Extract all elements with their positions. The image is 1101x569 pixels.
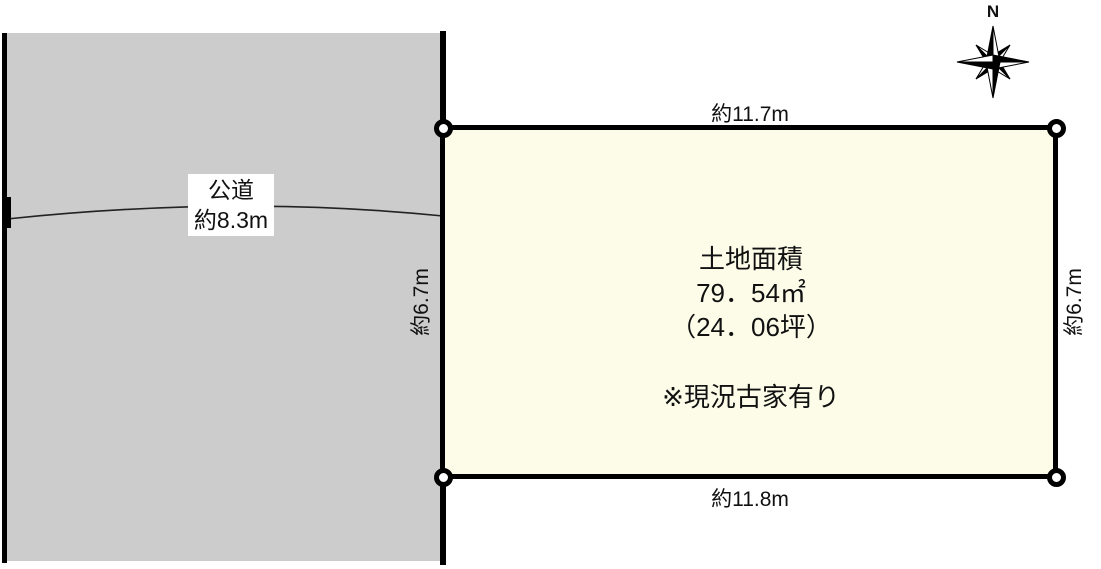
area-sqm: 79．54㎡ xyxy=(443,276,1059,310)
road-width-tick xyxy=(2,197,11,228)
corner-marker-top-left xyxy=(434,119,453,138)
corner-marker-bottom-left xyxy=(434,468,453,487)
road-area xyxy=(7,33,440,561)
compass-north-label: N xyxy=(953,2,1033,22)
road-name: 公道 xyxy=(208,175,254,205)
area-title: 土地面積 xyxy=(443,242,1059,276)
dimension-bottom: 約11.8m xyxy=(600,483,900,513)
road-label: 公道 約8.3m xyxy=(188,174,274,236)
land-plot-diagram: 公道 約8.3m 約11.7m 約11.8m 約6.7m 約6.7m 土地面積 … xyxy=(0,0,1101,569)
dimension-left: 約6.7m xyxy=(405,247,435,357)
plot-note: ※現況古家有り xyxy=(443,380,1059,414)
compass-rose-icon xyxy=(953,20,1033,104)
area-tsubo: （24．06坪） xyxy=(443,310,1059,344)
road-width-label: 約8.3m xyxy=(194,205,268,235)
plot-info: 土地面積 79．54㎡ （24．06坪） ※現況古家有り xyxy=(443,242,1059,414)
corner-marker-bottom-right xyxy=(1047,468,1066,487)
corner-marker-top-right xyxy=(1047,119,1066,138)
dimension-top: 約11.7m xyxy=(600,98,900,128)
dimension-right: 約6.7m xyxy=(1058,247,1088,357)
road-left-boundary-line xyxy=(2,33,7,563)
